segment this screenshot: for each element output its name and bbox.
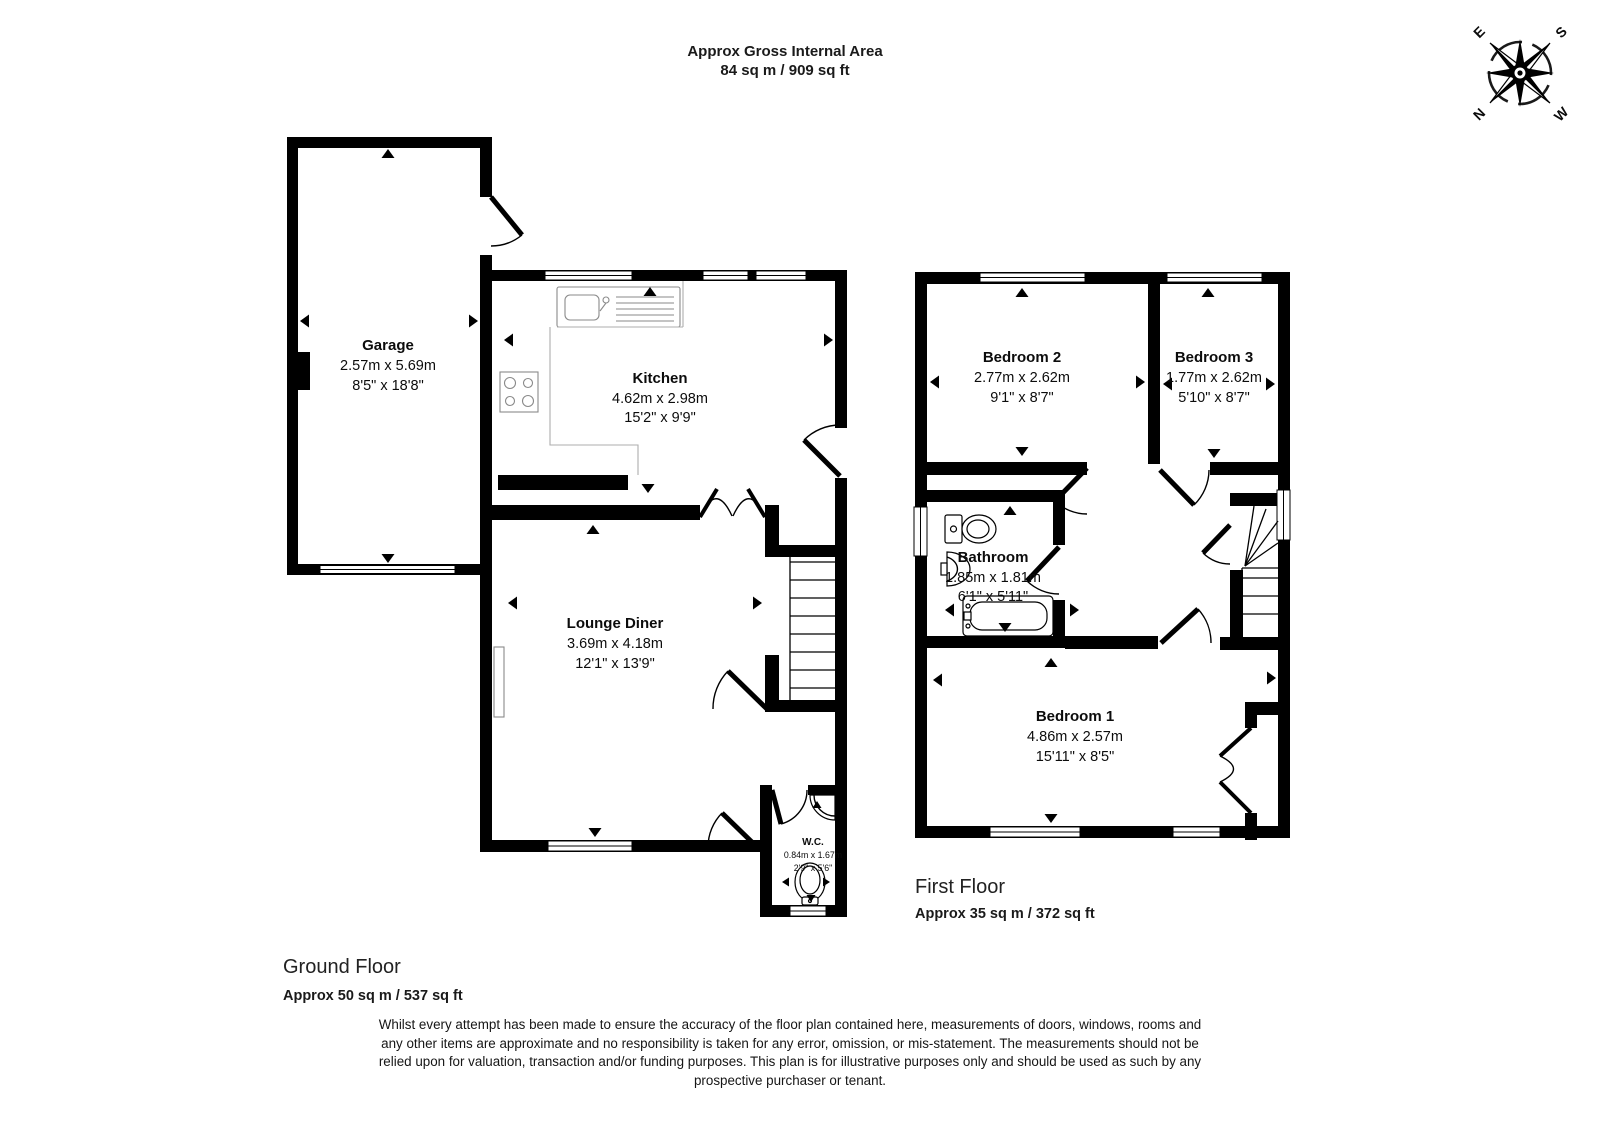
bedroom3-name: Bedroom 3 bbox=[1175, 349, 1253, 366]
first-floor-label: First Floor bbox=[915, 876, 1005, 899]
bathroom-imperial: 6'1" x 5'11" bbox=[958, 589, 1028, 605]
compass-north-label: N bbox=[1470, 105, 1488, 123]
garage-imperial: 8'5" x 18'8" bbox=[352, 378, 423, 394]
disclaimer: Whilst every attempt has been made to en… bbox=[315, 1016, 1265, 1090]
bathroom-metric: 1.85m x 1.81m bbox=[945, 570, 1041, 586]
bedroom3-metric: 1.77m x 2.62m bbox=[1166, 370, 1262, 386]
first-floor-plan: Bedroom 2 2.77m x 2.62m 9'1" x 8'7" Bedr… bbox=[905, 260, 1305, 860]
kitchen-name: Kitchen bbox=[632, 370, 687, 387]
ground-floor-plan: Garage 2.57m x 5.69m 8'5" x 18'8" Kitche… bbox=[270, 125, 860, 925]
kitchen-metric: 4.62m x 2.98m bbox=[612, 391, 708, 407]
compass-south-label: S bbox=[1552, 23, 1570, 41]
ground-walls bbox=[287, 137, 847, 917]
compass-rose-icon: E S N W bbox=[1462, 15, 1578, 131]
kitchen-hob-symbol bbox=[500, 372, 538, 412]
wc-imperial: 2'9" x 5'6" bbox=[794, 863, 832, 873]
kitchen-imperial: 15'2" x 9'9" bbox=[624, 410, 695, 426]
garage-metric: 2.57m x 5.69m bbox=[340, 358, 436, 374]
wc-metric: 0.84m x 1.67m bbox=[784, 850, 842, 860]
lounge-imperial: 12'1" x 13'9" bbox=[575, 656, 655, 672]
lounge-name: Lounge Diner bbox=[567, 615, 664, 632]
gross-internal-area-header: Approx Gross Internal Area 84 sq m / 909… bbox=[485, 42, 1085, 80]
bathroom-name: Bathroom bbox=[958, 549, 1029, 566]
disclaimer-line-3: relied upon for valuation, transaction a… bbox=[315, 1053, 1265, 1072]
bedroom3-imperial: 5'10" x 8'7" bbox=[1178, 390, 1249, 406]
floorplan-page: Approx Gross Internal Area 84 sq m / 909… bbox=[0, 0, 1600, 1134]
header-title: Approx Gross Internal Area bbox=[485, 42, 1085, 61]
bedroom2-name: Bedroom 2 bbox=[983, 349, 1061, 366]
lounge-radiator-symbol bbox=[494, 647, 504, 717]
wc-name: W.C. bbox=[802, 837, 824, 848]
kitchen-sink-symbol bbox=[557, 287, 680, 327]
bedroom1-metric: 4.86m x 2.57m bbox=[1027, 729, 1123, 745]
first-room-labels: Bedroom 2 2.77m x 2.62m 9'1" x 8'7" Bedr… bbox=[945, 349, 1262, 765]
first-stairs bbox=[1242, 506, 1278, 637]
ground-stairs bbox=[790, 557, 835, 700]
header-subtitle: 84 sq m / 909 sq ft bbox=[485, 61, 1085, 80]
bathroom-toilet-symbol bbox=[945, 515, 996, 543]
compass-east-label: E bbox=[1470, 23, 1488, 41]
lounge-metric: 3.69m x 4.18m bbox=[567, 636, 663, 652]
ground-doors bbox=[491, 197, 840, 847]
bedroom1-name: Bedroom 1 bbox=[1036, 708, 1114, 725]
compass-west-label: W bbox=[1551, 103, 1572, 124]
ground-dimension-arrows bbox=[300, 149, 833, 902]
bedroom2-imperial: 9'1" x 8'7" bbox=[990, 390, 1053, 406]
disclaimer-line-1: Whilst every attempt has been made to en… bbox=[315, 1016, 1265, 1035]
first-floor-area: Approx 35 sq m / 372 sq ft bbox=[915, 906, 1095, 922]
garage-name: Garage bbox=[362, 337, 414, 354]
ground-floor-area: Approx 50 sq m / 537 sq ft bbox=[283, 988, 463, 1004]
disclaimer-line-2: any other items are approximate and no r… bbox=[315, 1035, 1265, 1054]
bedroom2-metric: 2.77m x 2.62m bbox=[974, 370, 1070, 386]
ground-floor-label: Ground Floor bbox=[283, 956, 401, 979]
disclaimer-line-4: prospective purchaser or tenant. bbox=[315, 1072, 1265, 1091]
bedroom1-imperial: 15'11" x 8'5" bbox=[1036, 749, 1114, 765]
